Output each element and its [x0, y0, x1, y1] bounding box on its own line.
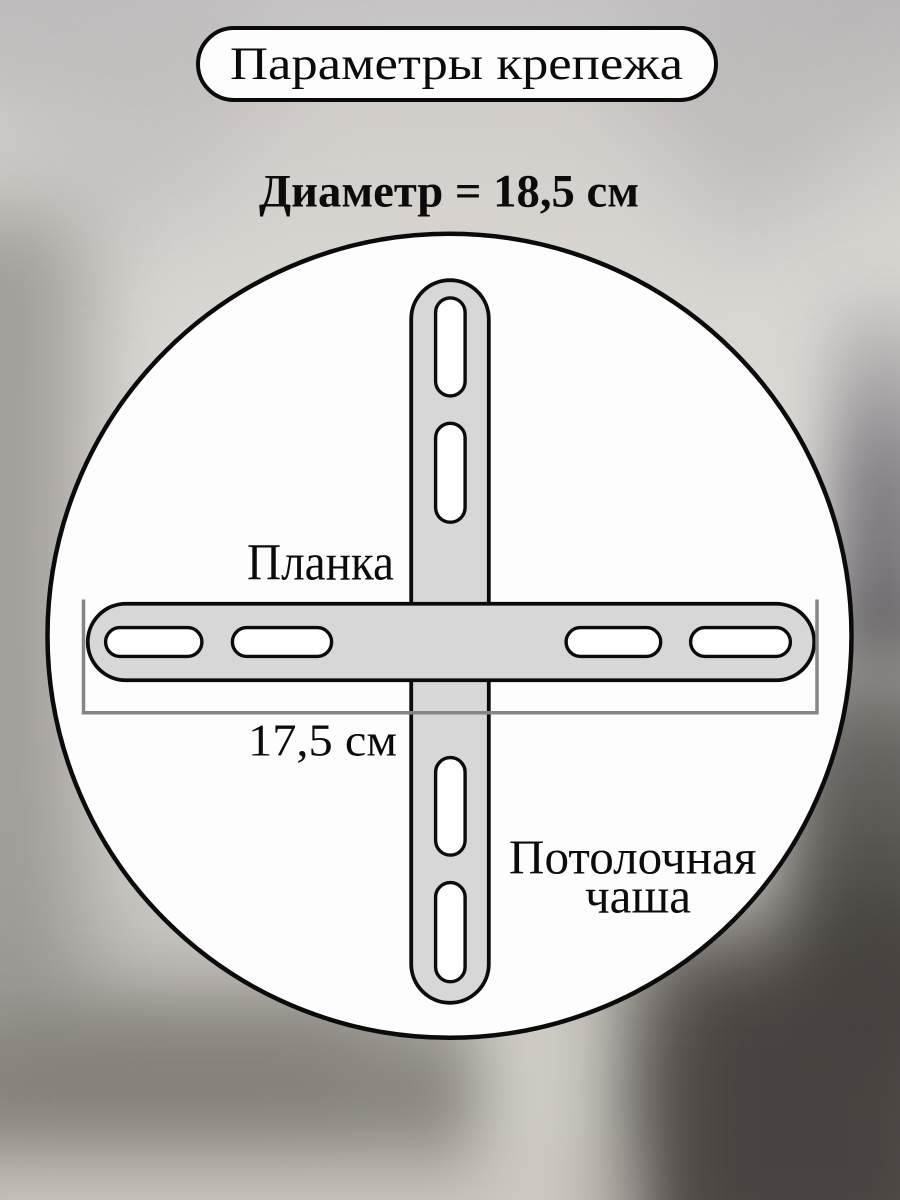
- svg-text:17,5 см: 17,5 см: [248, 715, 397, 765]
- svg-text:Диаметр = 18,5 см: Диаметр = 18,5 см: [259, 166, 639, 218]
- svg-text:Параметры крепежа: Параметры крепежа: [230, 38, 683, 90]
- svg-text:чаша: чаша: [585, 868, 691, 924]
- svg-text:Планка: Планка: [247, 535, 394, 592]
